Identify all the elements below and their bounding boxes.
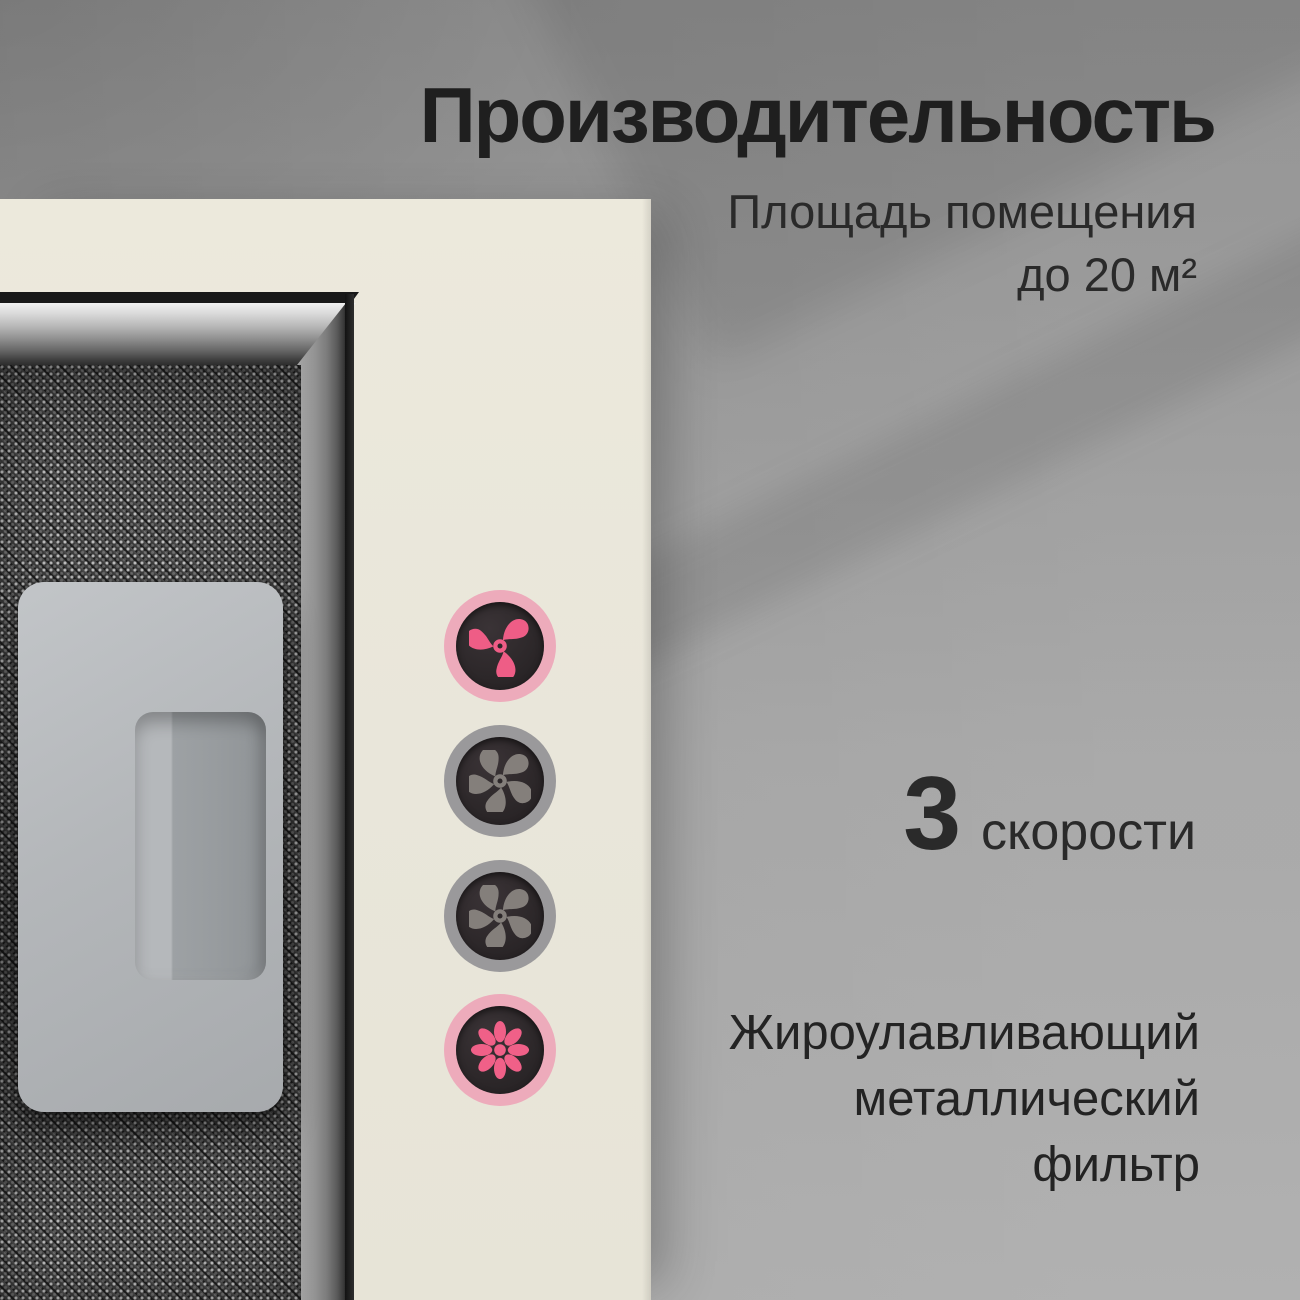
button-face xyxy=(456,872,544,960)
fan-icon xyxy=(469,885,531,947)
filter-right-gap xyxy=(345,294,354,1300)
fan-speed-3-button xyxy=(444,860,556,972)
light-button xyxy=(444,994,556,1106)
filter-spec: Жироулавливающий металлический фильтр xyxy=(729,1000,1200,1198)
filter-frame-top xyxy=(0,303,356,365)
filter-spec-line3: фильтр xyxy=(729,1132,1200,1198)
light-flower-icon xyxy=(469,1019,531,1081)
filter-frame-right xyxy=(297,303,346,1300)
button-face xyxy=(456,1006,544,1094)
fan-speed-2-button xyxy=(444,725,556,837)
filter-spec-line1: Жироулавливающий xyxy=(729,1000,1200,1066)
filter-spec-line2: металлический xyxy=(729,1066,1200,1132)
speeds-value: 3 xyxy=(903,762,961,866)
handle-recess xyxy=(135,712,266,980)
button-face xyxy=(456,737,544,825)
area-spec: Площадь помещения до 20 м² xyxy=(727,180,1197,306)
page-title: Производительность xyxy=(420,70,1215,161)
filter-handle-plate xyxy=(18,582,283,1112)
fan-icon xyxy=(469,750,531,812)
product-promo-card: Производительность Площадь помещения до … xyxy=(0,0,1300,1300)
speeds-label: скорости xyxy=(981,806,1196,858)
filter-top-gap xyxy=(0,292,359,303)
fan-icon xyxy=(469,615,531,677)
button-face xyxy=(456,602,544,690)
hood-body-edge xyxy=(642,199,651,1300)
area-spec-line2: до 20 м² xyxy=(727,243,1197,306)
speeds-spec: 3 скорости xyxy=(903,762,1196,866)
area-spec-line1: Площадь помещения xyxy=(727,180,1197,243)
fan-speed-1-button xyxy=(444,590,556,702)
